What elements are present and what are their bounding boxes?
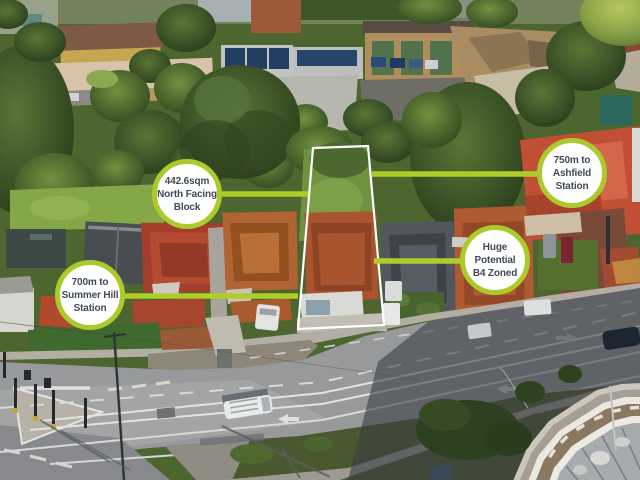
svg-text:Potential: Potential — [475, 255, 516, 266]
svg-text:North Facing: North Facing — [157, 189, 217, 200]
svg-text:Station: Station — [556, 181, 589, 192]
svg-text:750m to: 750m to — [554, 155, 591, 166]
svg-text:Summer Hill: Summer Hill — [62, 290, 119, 301]
svg-text:Huge: Huge — [483, 242, 508, 253]
svg-text:442.6sqm: 442.6sqm — [165, 176, 210, 187]
svg-text:Ashfield: Ashfield — [553, 168, 591, 179]
svg-text:B4 Zoned: B4 Zoned — [473, 268, 517, 279]
svg-text:Station: Station — [74, 303, 107, 314]
svg-text:700m to: 700m to — [72, 277, 109, 288]
svg-text:Block: Block — [174, 202, 201, 213]
